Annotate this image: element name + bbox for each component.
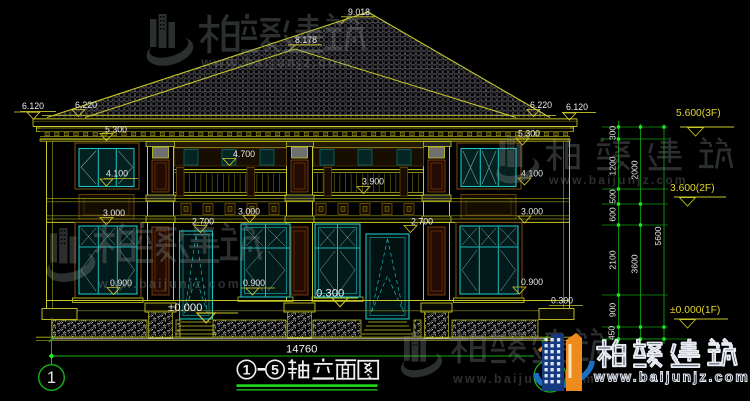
- svg-text:900: 900: [608, 303, 618, 318]
- svg-text:3.000: 3.000: [238, 207, 260, 217]
- svg-text:6.220: 6.220: [75, 100, 97, 110]
- svg-text:1: 1: [243, 362, 251, 378]
- svg-text:5.600(3F): 5.600(3F): [676, 108, 721, 119]
- svg-text:4.700: 4.700: [233, 149, 255, 159]
- svg-text:www.baijunjz.com: www.baijunjz.com: [593, 369, 750, 385]
- svg-text:6.120: 6.120: [566, 102, 588, 112]
- svg-text:5.300: 5.300: [518, 129, 540, 139]
- svg-text:600: 600: [608, 207, 618, 222]
- svg-text:0.900: 0.900: [243, 278, 265, 288]
- svg-text:0.300: 0.300: [551, 296, 573, 306]
- svg-text:300: 300: [608, 126, 618, 141]
- svg-text:5: 5: [271, 362, 279, 378]
- svg-text:3600: 3600: [630, 254, 640, 273]
- svg-text:500: 500: [608, 189, 618, 204]
- svg-text:3.000: 3.000: [521, 207, 543, 217]
- svg-text:450: 450: [607, 326, 617, 341]
- svg-text:4.100: 4.100: [106, 169, 128, 179]
- svg-text:3.900: 3.900: [362, 177, 384, 187]
- svg-text:www.baijunjz.com: www.baijunjz.com: [200, 55, 353, 70]
- svg-text:6.220: 6.220: [530, 100, 552, 110]
- svg-text:6.120: 6.120: [22, 101, 44, 111]
- svg-text:5600: 5600: [653, 226, 663, 245]
- svg-text:www.baijunjz.com: www.baijunjz.com: [548, 173, 688, 187]
- svg-text:1: 1: [47, 369, 56, 387]
- svg-text:±0.000(1F): ±0.000(1F): [670, 305, 720, 316]
- svg-text:5.300: 5.300: [105, 125, 127, 135]
- svg-text:2.700: 2.700: [411, 217, 433, 227]
- svg-text:14760: 14760: [286, 344, 317, 356]
- svg-text:±0.000: ±0.000: [168, 302, 202, 314]
- svg-text:2100: 2100: [608, 250, 618, 269]
- svg-text:www.baijunjz.com: www.baijunjz.com: [97, 277, 241, 291]
- svg-text:3.000: 3.000: [103, 208, 125, 218]
- svg-text:0.900: 0.900: [521, 277, 543, 287]
